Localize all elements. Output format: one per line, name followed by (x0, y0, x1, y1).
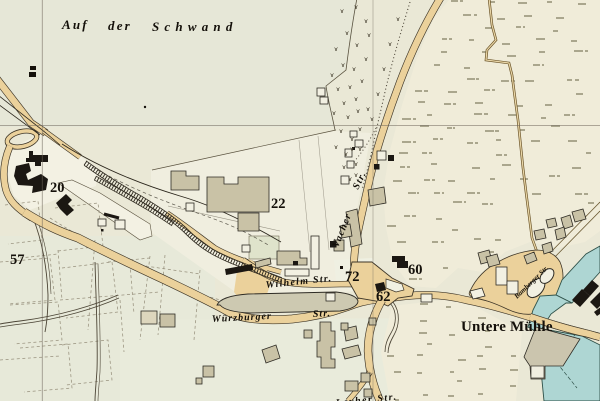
svg-text:der: der (108, 18, 132, 33)
svg-text:62: 62 (376, 289, 391, 305)
svg-text:22: 22 (271, 196, 286, 212)
svg-text:Str.: Str. (313, 308, 332, 320)
svg-text:Untere Mühle: Untere Mühle (461, 319, 553, 335)
svg-text:Schwand: Schwand (152, 19, 238, 34)
svg-text:57: 57 (10, 252, 25, 268)
svg-text:20: 20 (50, 180, 65, 196)
svg-text:Auf: Auf (61, 17, 89, 32)
svg-text:72: 72 (345, 269, 360, 285)
svg-text:60: 60 (408, 262, 423, 278)
